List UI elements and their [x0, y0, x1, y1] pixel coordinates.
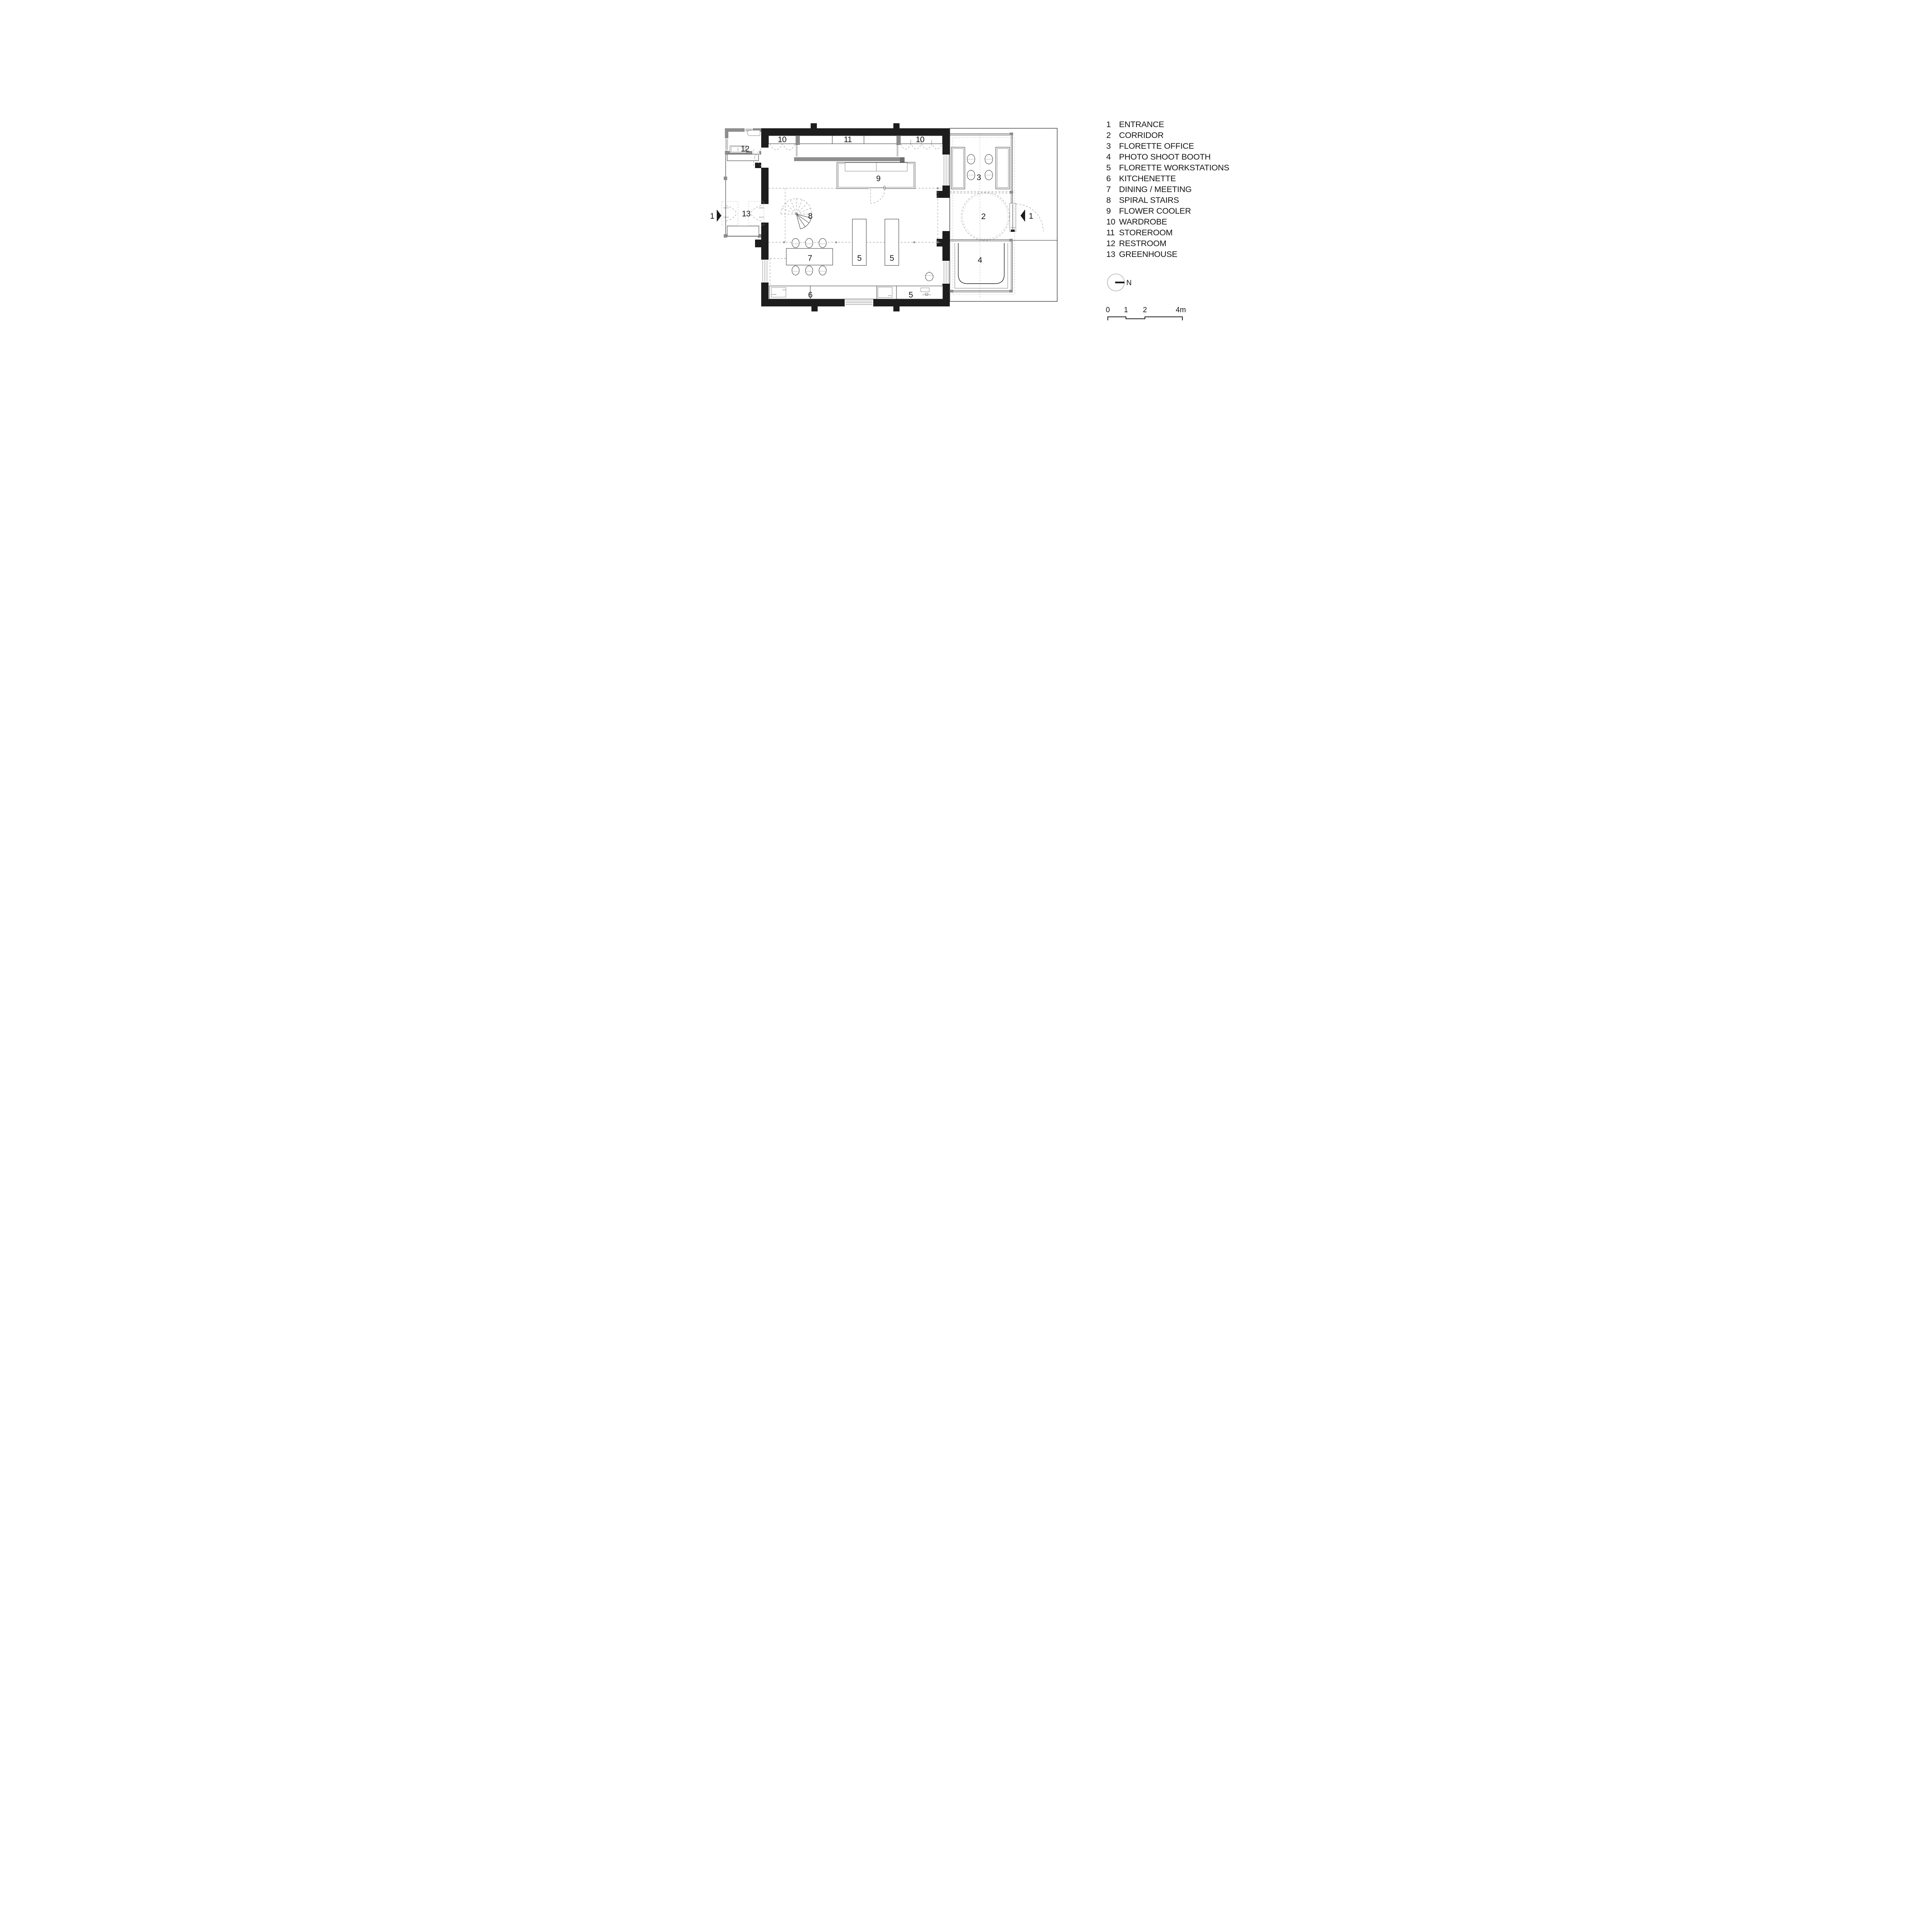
legend: 1 ENTRANCE 2 CORRIDOR 3 FLORETTE OFFICE … — [1106, 120, 1229, 259]
legend-num-8: 8 — [1106, 196, 1111, 205]
flower-cooler-zone — [794, 157, 915, 203]
legend-label-4: PHOTO SHOOT BOOTH — [1119, 152, 1211, 162]
legend-num-10: 10 — [1106, 217, 1116, 226]
room-label-restroom: 12 — [741, 145, 749, 153]
sliding-door-leaves — [796, 144, 898, 156]
room-label-wardrobe-left: 10 — [778, 135, 786, 144]
legend-num-2: 2 — [1106, 131, 1111, 140]
entrance-door-step — [1011, 230, 1015, 232]
legend-label-1: ENTRANCE — [1119, 120, 1164, 129]
north-label: N — [1126, 279, 1132, 287]
workstations — [852, 219, 934, 281]
legend-num-9: 9 — [1106, 206, 1111, 216]
office-desk-left — [951, 147, 965, 189]
scale-tick-1: 1 — [1124, 306, 1128, 314]
curtain-arcs-wardrobe-right — [901, 144, 942, 149]
legend-num-6: 6 — [1106, 174, 1111, 183]
interior-gray-wall — [794, 157, 903, 161]
legend-label-10: WARDROBE — [1119, 217, 1167, 226]
scale-tick-4m: 4m — [1176, 306, 1186, 314]
guide-dot-4 — [913, 241, 915, 243]
guide-dot-1 — [937, 187, 939, 189]
room-label-booth: 4 — [978, 256, 982, 265]
cooler-door-swing-arc — [871, 189, 885, 203]
dishwasher — [878, 287, 892, 298]
sink-basin — [921, 288, 929, 292]
bathtub — [747, 130, 760, 136]
closet-divider-wall-right — [896, 136, 901, 145]
backdrop-frame — [955, 243, 1008, 288]
office-desk-right — [996, 147, 1010, 189]
wall-tab-top-2 — [893, 123, 900, 128]
legend-label-9: FLOWER COOLER — [1119, 206, 1191, 216]
right-annex — [950, 128, 1057, 301]
wall-tab-bottom-1 — [811, 306, 818, 311]
legend-label-7: DINING / MEETING — [1119, 185, 1192, 194]
door-opening-restroom-terrace — [761, 148, 769, 168]
legend-num-12: 12 — [1106, 239, 1115, 248]
legend-label-3: FLORETTE OFFICE — [1119, 141, 1194, 151]
legend-num-3: 3 — [1106, 141, 1111, 151]
kitchen-counter — [769, 286, 896, 299]
kitchenette-counter — [769, 286, 943, 299]
room-label-workstation-b: 5 — [889, 254, 894, 263]
legend-num-7: 7 — [1106, 185, 1111, 194]
door-opening-greenhouse — [761, 204, 769, 223]
legend-label-11: STOREROOM — [1119, 228, 1173, 237]
section-arrow-right — [1020, 209, 1025, 222]
curtain-arcs-wardrobe-left — [770, 144, 795, 150]
legend-num-4: 4 — [1106, 152, 1111, 162]
room-label-wardrobe-right: 10 — [916, 135, 924, 144]
room-label-kitchenette: 6 — [808, 291, 812, 299]
spiral-stairs — [781, 199, 812, 229]
booth-corner-block-se — [1009, 290, 1013, 293]
wall-tab-bottom-2 — [893, 306, 900, 311]
wall-tab-top-1 — [811, 123, 817, 128]
greenhouse-bench — [727, 226, 759, 236]
guide-dot-2 — [783, 241, 785, 243]
scale-tick-0: 0 — [1106, 306, 1110, 314]
section-label-left: 1 — [710, 212, 714, 221]
legend-label-6: KITCHENETTE — [1119, 174, 1176, 183]
wall-tab-right-1 — [937, 191, 942, 198]
legend-num-11: 11 — [1106, 228, 1115, 237]
greenhouse-door-dashed-box-left — [722, 201, 738, 225]
oven — [771, 287, 786, 297]
room-label-greenhouse: 13 — [742, 209, 750, 218]
room-label-workstation-counter: 5 — [908, 291, 913, 299]
opening-corridor — [942, 198, 950, 231]
north-indicator: N — [1107, 274, 1132, 291]
scale-bar: 0 1 2 4m — [1106, 306, 1186, 320]
booth-corner-block-ne — [1009, 239, 1013, 241]
legend-label-8: SPIRAL STAIRS — [1119, 196, 1179, 205]
legend-num-1: 1 — [1106, 120, 1111, 129]
room-label-spiral-stairs: 8 — [808, 212, 812, 221]
stool — [925, 272, 933, 281]
booth-corner-block-sw — [950, 290, 953, 293]
room-label-workstation-a: 5 — [857, 254, 861, 263]
legend-num-5: 5 — [1106, 163, 1111, 172]
legend-num-13: 13 — [1106, 250, 1116, 259]
wall-tab-left-2 — [755, 240, 761, 247]
scale-tick-2: 2 — [1143, 306, 1147, 314]
legend-label-12: RESTROOM — [1119, 239, 1167, 248]
spiral-center-post — [795, 213, 797, 215]
closet-divider-wall-left — [796, 136, 800, 145]
section-label-right: 1 — [1029, 212, 1033, 221]
scale-bar-line — [1108, 317, 1182, 320]
room-label-dining: 7 — [808, 254, 812, 263]
section-arrow-left — [717, 209, 721, 222]
main-building-walls — [755, 123, 950, 311]
legend-label-5: FLORETTE WORKSTATIONS — [1119, 163, 1229, 172]
floor-plan-drawing: 10 11 10 12 9 13 8 2 3 4 7 5 5 6 5 1 1 1… — [657, 0, 1275, 437]
office-corner-block-ne — [1010, 133, 1013, 135]
booth-walls — [950, 240, 1013, 292]
north-bar — [1115, 282, 1124, 283]
legend-label-2: CORRIDOR — [1119, 131, 1163, 140]
room-label-corridor: 2 — [981, 212, 985, 221]
legend-label-13: GREENHOUSE — [1119, 250, 1177, 259]
cooler-shelf — [845, 163, 907, 171]
guide-dot-5 — [937, 241, 939, 243]
room-label-flower-cooler: 9 — [876, 174, 880, 183]
gray-wall-end-block — [900, 157, 905, 163]
greenhouse-post-2 — [724, 234, 727, 238]
guide-dot-3 — [835, 241, 837, 243]
spiral-dashed-treads — [781, 199, 812, 214]
room-label-storeroom: 11 — [844, 135, 852, 144]
terrace-counter — [727, 154, 759, 161]
wall-top — [761, 128, 950, 136]
room-label-office: 3 — [976, 173, 981, 182]
workstation-counter — [896, 286, 943, 299]
office-corner-block-se — [1010, 191, 1013, 194]
floor-plan-page: 10 11 10 12 9 13 8 2 3 4 7 5 5 6 5 1 1 1… — [657, 0, 1275, 437]
greenhouse-post-1 — [724, 177, 727, 180]
